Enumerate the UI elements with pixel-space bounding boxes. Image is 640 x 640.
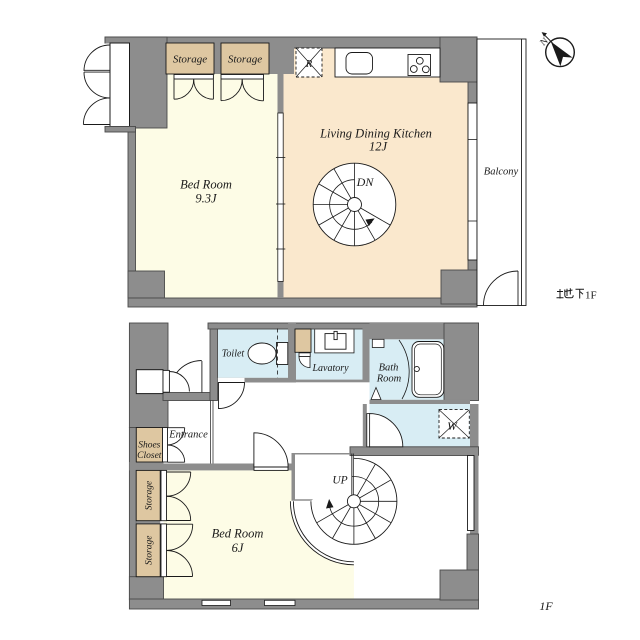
svg-text:UP: UP xyxy=(332,475,347,487)
svg-text:Bath: Bath xyxy=(379,363,399,374)
svg-text:1F: 1F xyxy=(585,290,597,302)
svg-text:DN: DN xyxy=(356,175,375,189)
svg-text:R: R xyxy=(305,59,313,70)
svg-text:W: W xyxy=(447,421,458,433)
svg-text:Storage: Storage xyxy=(228,54,262,66)
svg-text:Storage: Storage xyxy=(145,481,155,511)
svg-text:Bed Room: Bed Room xyxy=(180,178,232,192)
svg-text:Shoes: Shoes xyxy=(138,441,160,451)
svg-text:Bed Room: Bed Room xyxy=(212,527,264,541)
svg-text:Lavatory: Lavatory xyxy=(311,363,349,374)
svg-text:Balcony: Balcony xyxy=(484,167,519,178)
svg-text:Room: Room xyxy=(376,374,402,385)
svg-text:6J: 6J xyxy=(232,541,245,555)
svg-text:Storage: Storage xyxy=(173,54,207,66)
svg-text:Storage: Storage xyxy=(145,536,155,566)
svg-text:12J: 12J xyxy=(369,140,389,154)
svg-text:9.3J: 9.3J xyxy=(195,192,218,206)
svg-text:Living Dining Kitchen: Living Dining Kitchen xyxy=(319,127,432,141)
svg-text:Toilet: Toilet xyxy=(222,349,245,360)
svg-text:Entrance: Entrance xyxy=(168,430,208,441)
svg-text:1F: 1F xyxy=(539,599,553,613)
svg-text:Closet: Closet xyxy=(137,451,162,461)
